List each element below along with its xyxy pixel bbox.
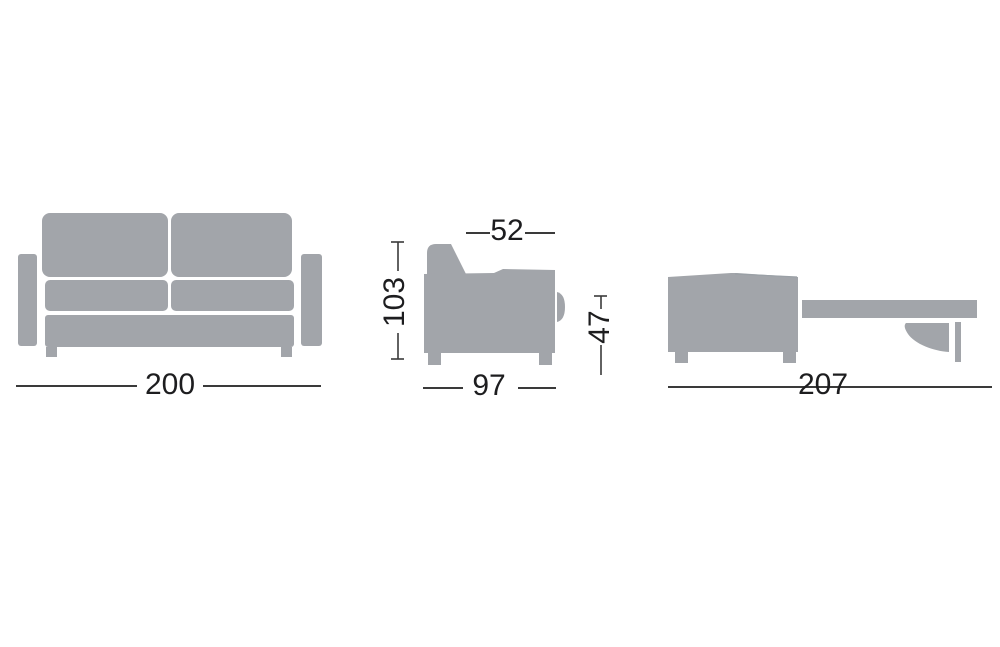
dim-label-front-width: 200	[145, 370, 195, 400]
front-foot-right	[281, 347, 292, 357]
diagram-shapes	[0, 0, 1000, 647]
open-bed-platform	[802, 300, 977, 318]
side-view	[391, 233, 607, 388]
front-armrest-right	[301, 254, 322, 346]
open-bed-leg	[955, 322, 961, 362]
side-foot-left	[428, 353, 441, 365]
front-seat-cushion-right	[171, 280, 294, 311]
side-body	[424, 269, 555, 353]
front-seat-cushion-left	[45, 280, 168, 311]
side-foot-right	[539, 353, 552, 365]
dim-label-height: 103	[380, 277, 410, 327]
front-view	[16, 213, 322, 386]
open-foot-right	[783, 352, 796, 363]
dim-label-seat-height: 47	[585, 310, 615, 343]
dim-label-open-length: 207	[798, 370, 848, 400]
front-back-cushion-right	[171, 213, 292, 277]
open-body	[668, 273, 798, 352]
open-foot-left	[675, 352, 688, 363]
dim-label-depth: 97	[472, 371, 505, 401]
dim-label-seat-depth: 52	[490, 216, 523, 246]
side-backrest	[427, 244, 466, 274]
front-back-cushion-left	[42, 213, 168, 277]
sofa-dimension-diagram: 200 52 103 47 97 207	[0, 0, 1000, 647]
front-armrest-left	[18, 254, 37, 346]
side-cushion-edge	[557, 292, 565, 322]
front-base	[45, 315, 294, 347]
open-support-bracket	[905, 323, 949, 352]
front-foot-left	[46, 347, 57, 357]
